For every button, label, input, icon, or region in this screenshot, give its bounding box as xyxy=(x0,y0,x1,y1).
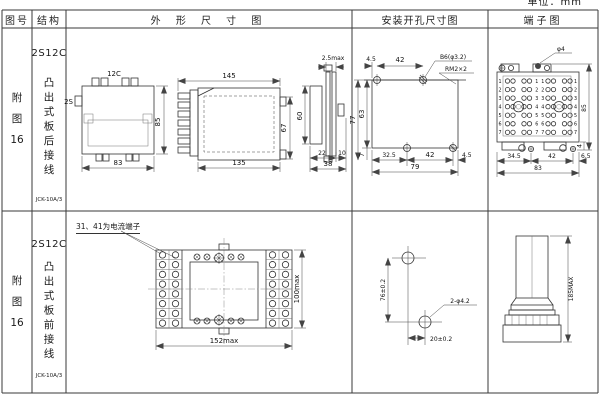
svg-text:4: 4 xyxy=(535,104,538,110)
side-view-row2: 185MAX xyxy=(503,236,575,342)
dim-42-terminal: 42 xyxy=(548,153,556,160)
dim-85-terminal: 85 xyxy=(581,104,588,112)
dim-152max: 152max xyxy=(210,337,239,345)
svg-text:4: 4 xyxy=(541,104,544,110)
svg-text:5: 5 xyxy=(574,113,577,119)
svg-text:3: 3 xyxy=(498,96,501,102)
dim-63: 63 xyxy=(358,110,366,119)
svg-text:7: 7 xyxy=(574,130,577,136)
dim-4-5-bottom: 4.5 xyxy=(462,152,472,159)
dim-100max: 100max xyxy=(293,275,301,304)
dim-4-terminal: 4 xyxy=(577,144,584,148)
label-2s: 2S xyxy=(64,98,73,106)
svg-text:6: 6 xyxy=(574,122,577,128)
svg-text:5: 5 xyxy=(535,113,538,119)
svg-text:3: 3 xyxy=(574,96,577,102)
hole-spec-label-row2: 2-φ4.2 xyxy=(450,298,470,305)
drawing-sheet: 单位：mm 图号 结构 外 形 尺 寸 图 安装开孔尺寸图 端子图 附 图 16… xyxy=(0,0,600,400)
dim-85: 85 xyxy=(154,118,162,127)
dim-60: 60 xyxy=(296,112,304,121)
front-view: 152max 100max xyxy=(121,231,306,350)
dim-42-top: 42 xyxy=(396,56,405,64)
dim-83-terminal: 83 xyxy=(534,165,542,172)
svg-text:1: 1 xyxy=(498,79,501,85)
outline-side-view: 145 135 67 xyxy=(178,72,293,172)
svg-text:7: 7 xyxy=(541,130,544,136)
svg-text:7: 7 xyxy=(498,130,501,136)
dim-185max: 185MAX xyxy=(568,277,575,302)
svg-text:5: 5 xyxy=(498,113,501,119)
dim-4-5-top: 4.5 xyxy=(366,56,376,63)
svg-text:2: 2 xyxy=(574,87,577,93)
dim-76: 76±0.2 xyxy=(380,279,387,301)
terminal-board: φ4 1111222233334444555566667777 85 4 34.… xyxy=(497,46,592,177)
hole-spec-label: B6(φ3.2) xyxy=(440,54,466,61)
svg-text:3: 3 xyxy=(541,96,544,102)
dim-20: 20±0.2 xyxy=(430,336,452,343)
outline-panel-section: 2.5max 60 22 10 38 xyxy=(296,55,346,172)
dim-135: 135 xyxy=(232,159,245,167)
outline-top-view: 12C 2S 85 83 xyxy=(64,70,168,172)
drawings-layer: 12C 2S 85 83 145 135 xyxy=(0,0,600,400)
dim-38: 38 xyxy=(324,160,333,168)
dim-79: 79 xyxy=(411,163,420,171)
svg-text:2: 2 xyxy=(541,87,544,93)
mounting-holes-row1: 4.5 42 B6(φ3.2) RM2×2 63 77 7 32.5 42 4.… xyxy=(349,54,474,176)
svg-text:4: 4 xyxy=(498,104,501,110)
dim-42-bottom: 42 xyxy=(426,151,435,159)
svg-text:7: 7 xyxy=(535,130,538,136)
mounting-holes-row2: 76±0.2 20±0.2 2-φ4.2 xyxy=(380,246,477,345)
dim-7: 7 xyxy=(359,153,366,157)
svg-text:2: 2 xyxy=(498,87,501,93)
svg-text:5: 5 xyxy=(541,113,544,119)
dim-67: 67 xyxy=(280,124,288,133)
svg-text:6: 6 xyxy=(535,122,538,128)
dim-22: 22 xyxy=(318,150,326,157)
svg-text:2: 2 xyxy=(535,87,538,93)
svg-text:3: 3 xyxy=(535,96,538,102)
terminal-screw-label: φ4 xyxy=(557,46,565,53)
svg-text:4: 4 xyxy=(574,104,577,110)
svg-text:1: 1 xyxy=(541,79,544,85)
svg-text:6: 6 xyxy=(541,122,544,128)
dim-10: 10 xyxy=(338,150,346,157)
dim-77: 77 xyxy=(349,116,357,125)
dim-34-5: 34.5 xyxy=(507,153,521,160)
svg-text:1: 1 xyxy=(574,79,577,85)
dim-6-5: 6.5 xyxy=(581,153,591,160)
dim-83: 83 xyxy=(114,159,123,167)
svg-text:6: 6 xyxy=(498,122,501,128)
svg-text:1: 1 xyxy=(535,79,538,85)
thread-spec-label: RM2×2 xyxy=(445,66,467,73)
dim-2-5max: 2.5max xyxy=(322,55,345,62)
label-12c: 12C xyxy=(107,70,121,78)
dim-145: 145 xyxy=(222,72,235,80)
dim-32-5: 32.5 xyxy=(382,152,396,159)
